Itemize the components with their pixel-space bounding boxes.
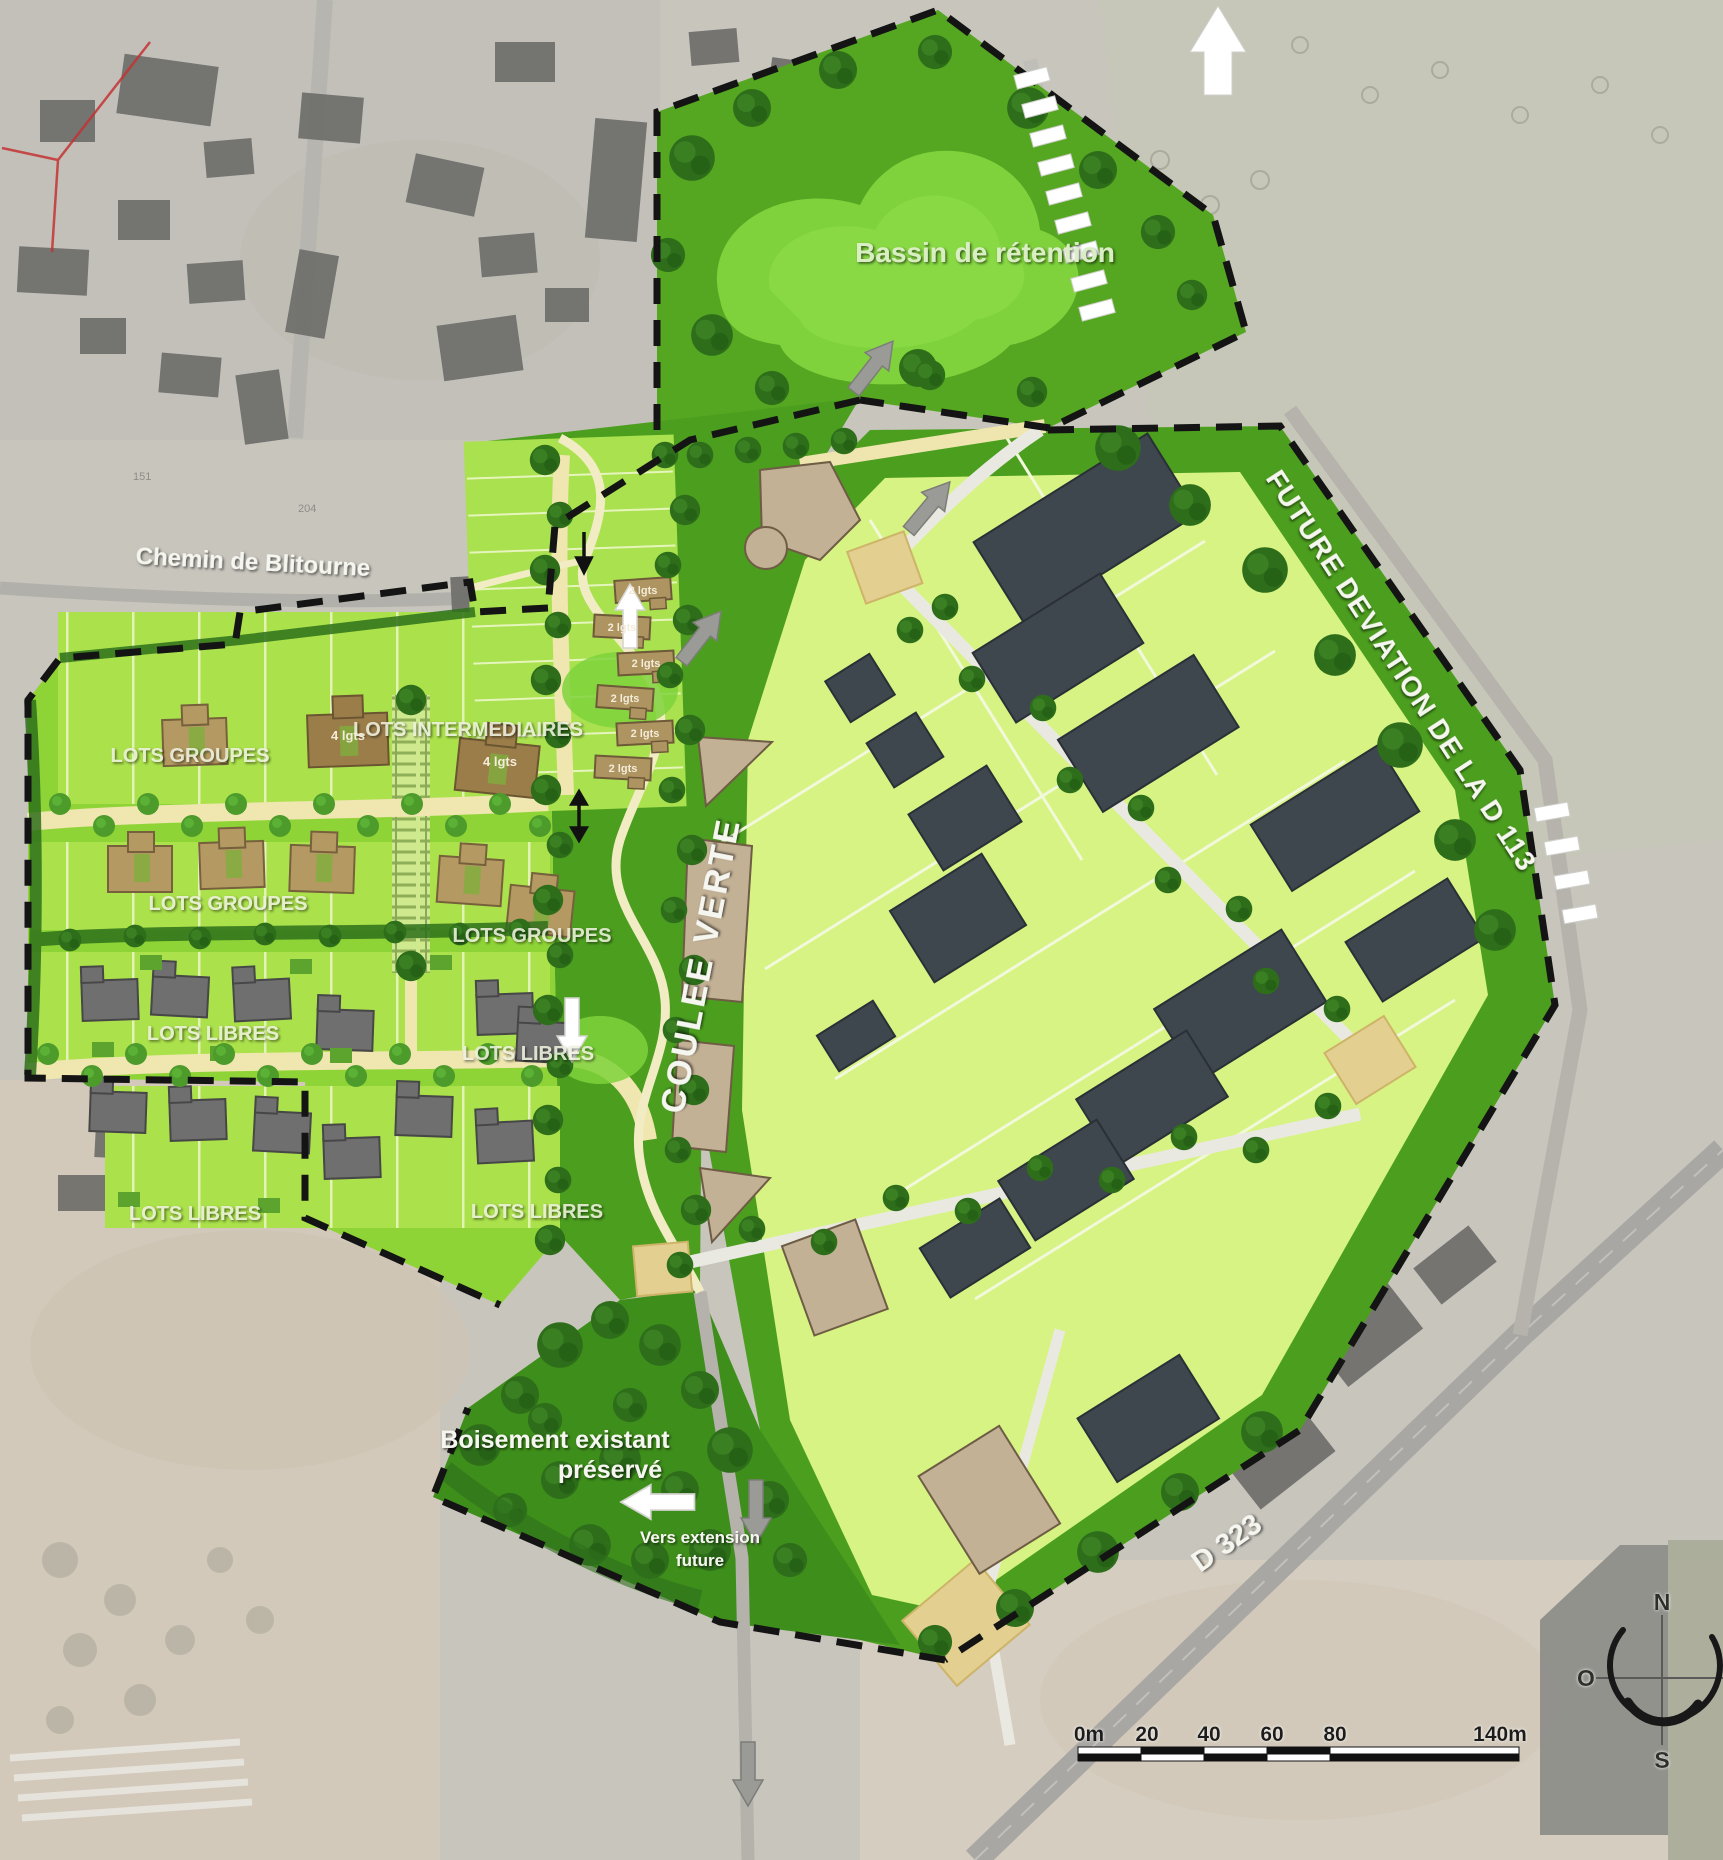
extension-label-line1: Vers extension [640, 1528, 760, 1547]
scale-tick: 80 [1323, 1723, 1346, 1746]
lot4-label: 4 lgts [331, 728, 365, 743]
compass-south: S [1654, 1747, 1669, 1773]
woodland-label-line1: Boisement existant [440, 1426, 670, 1454]
scale-tick: 20 [1135, 1723, 1158, 1746]
map-canvas: 151 204 216 [0, 0, 1723, 1860]
scale-tick: 40 [1197, 1723, 1220, 1746]
compass-west: O [1577, 1665, 1595, 1691]
lots-groupes-label: LOTS GROUPES [111, 745, 270, 767]
lots-libres-label: LOTS LIBRES [129, 1203, 261, 1225]
lots-intermediaires-label: LOTS INTERMEDIAIRES [353, 719, 583, 741]
masterplan-map: 151 204 216 [0, 0, 1723, 1860]
lot4-label: 4 lgts [483, 754, 517, 769]
parcel-number: 204 [298, 503, 316, 515]
woodland-label-line2: préservé [558, 1456, 662, 1484]
parcel-number: 151 [133, 471, 151, 483]
lots-libres-label: LOTS LIBRES [147, 1023, 279, 1045]
basin-label: Bassin de rétention [855, 237, 1115, 268]
extension-label-line2: future [676, 1551, 724, 1570]
lots-libres-label: LOTS LIBRES [462, 1043, 594, 1065]
scale-bar-segments [1078, 1747, 1519, 1761]
lot2-label: 2 lgts [631, 728, 660, 740]
scale-tick: 60 [1260, 1723, 1283, 1746]
scale-tick: 0m [1074, 1723, 1104, 1746]
scale-tick: 140m [1473, 1723, 1527, 1746]
compass-north: N [1654, 1589, 1671, 1615]
lot2-label: 2 lgts [629, 585, 658, 597]
lot2-label: 2 lgts [632, 658, 661, 670]
lot2-label: 2 lgts [609, 763, 638, 775]
lot2-label: 2 lgts [608, 622, 637, 634]
lots-libres-label: LOTS LIBRES [471, 1201, 603, 1223]
lots-groupes-label: LOTS GROUPES [149, 893, 308, 915]
lots-groupes-label: LOTS GROUPES [453, 925, 612, 947]
lot2-label: 2 lgts [611, 693, 640, 705]
